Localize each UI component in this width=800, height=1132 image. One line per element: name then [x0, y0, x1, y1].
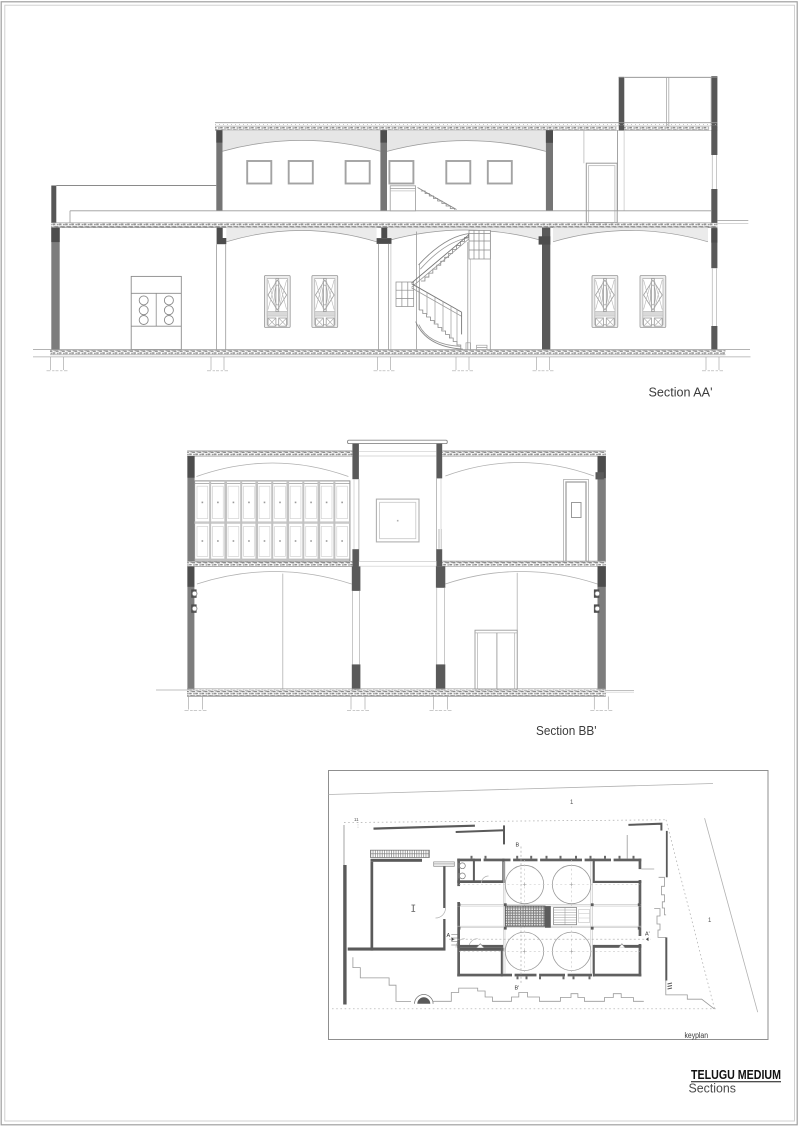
- svg-text:Section AA': Section AA': [649, 384, 713, 399]
- svg-text:11: 11: [354, 817, 359, 822]
- svg-text:Section BB': Section BB': [536, 723, 597, 738]
- svg-text:keyplan: keyplan: [685, 1031, 709, 1040]
- svg-text:A': A': [645, 932, 650, 938]
- svg-text:B: B: [516, 843, 520, 849]
- svg-text:B': B': [515, 986, 520, 992]
- svg-text:Sections: Sections: [689, 1081, 737, 1096]
- svg-text:A: A: [447, 933, 451, 939]
